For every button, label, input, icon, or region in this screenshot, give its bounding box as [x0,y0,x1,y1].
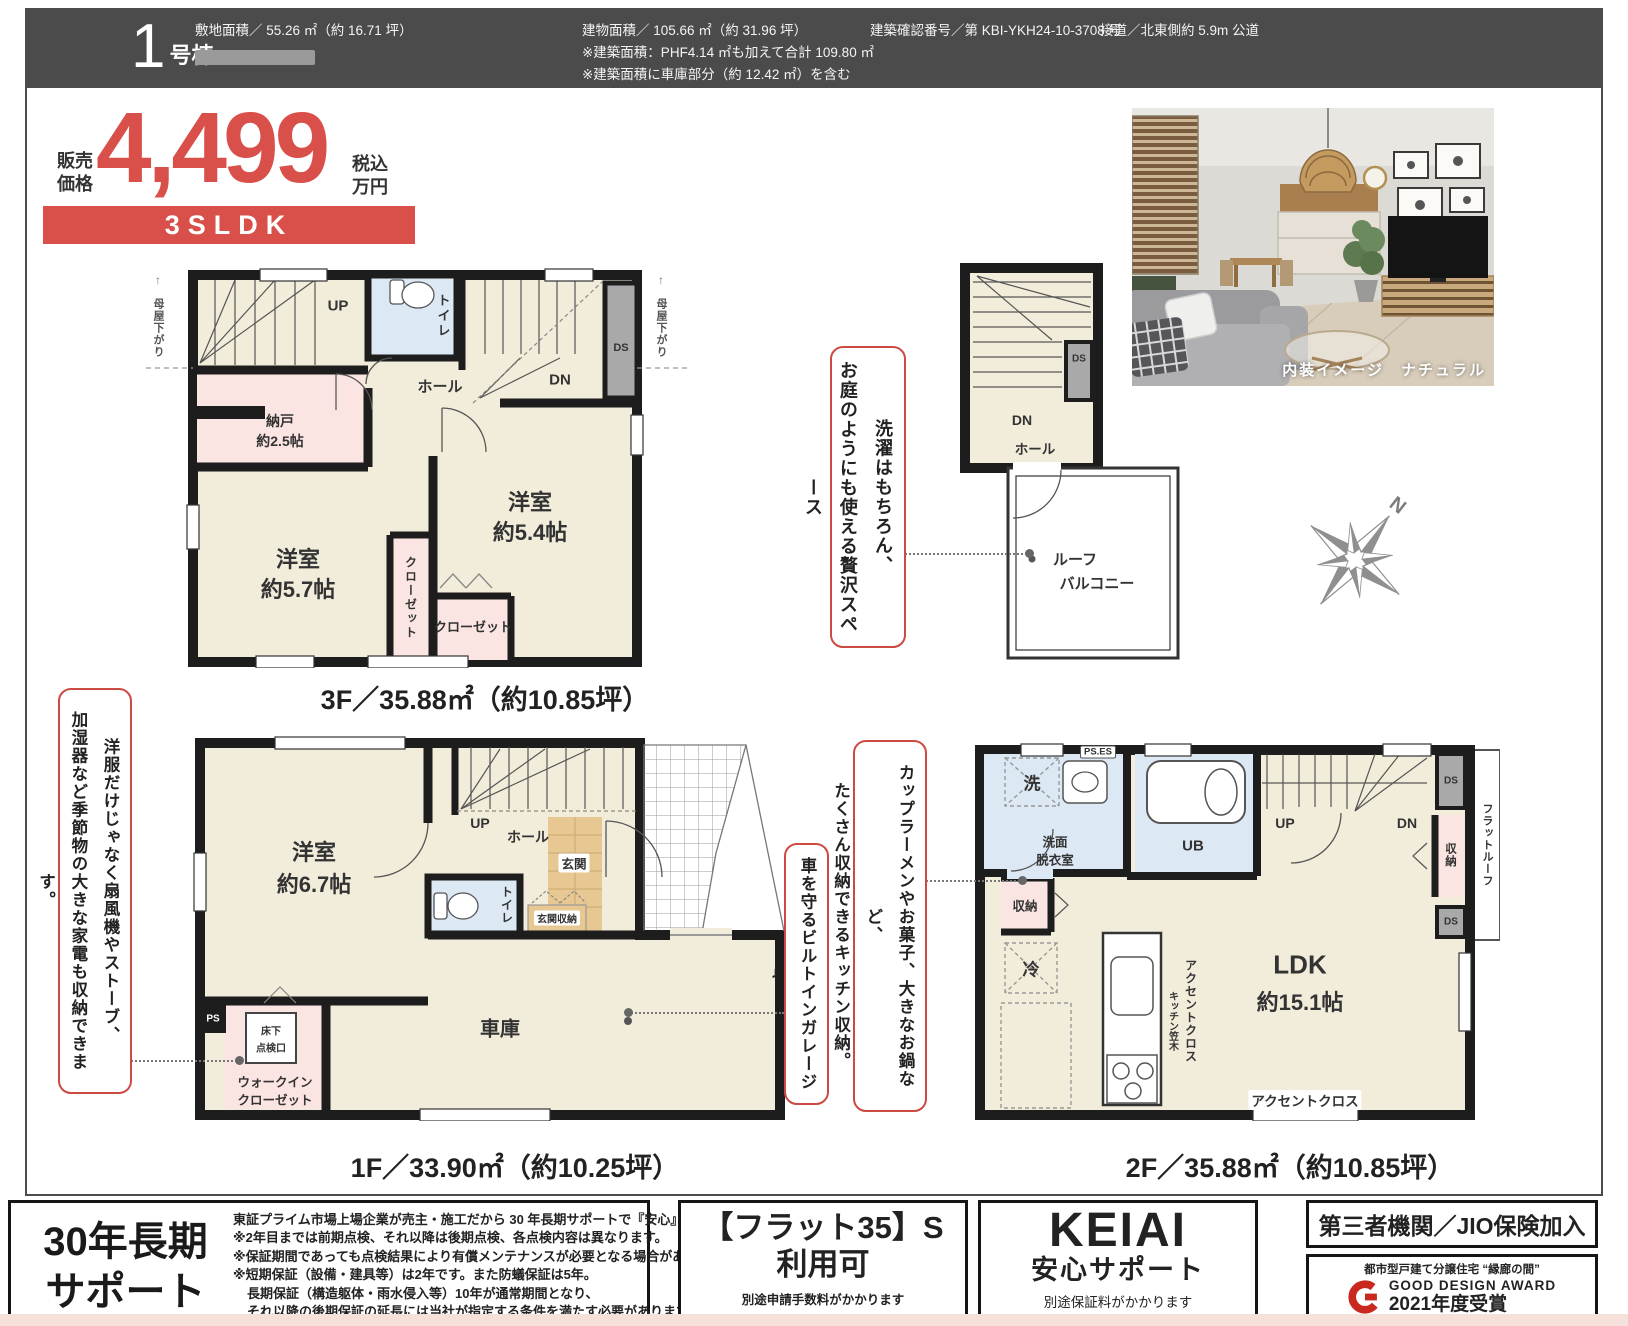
keiai-sub: 安心サポート [1031,1255,1205,1286]
roof-hall-label: ホール [1015,438,1056,458]
jio-box: 第三者機関／JIO保険加入 [1306,1200,1598,1248]
keiai-note: 別途保証料がかかります [1044,1291,1193,1311]
f1-ps-label: PS [206,1014,219,1025]
f3-room1-label: 洋室 [276,542,320,574]
caption-2f: 2F／35.88㎡（約10.85坪） [1090,1146,1490,1185]
good-design-box: 都市型戸建て分譲住宅 “縁廊の間” GOOD DESIGN AWARD 2021… [1306,1254,1598,1318]
f3-room2-label: 洋室 [508,485,552,517]
f3-eaves-left-arrow: ↑ [155,273,161,287]
f3-up-label: UP [328,298,349,315]
f3-toilet-label: トイレ [434,294,453,339]
f1-toilet-label: トイレ [499,886,516,925]
f2-sanitary-label-2: 脱衣室 [1036,850,1074,869]
f1-wic-label-1: ウォークイン [237,1072,312,1091]
f2-accent-cloth-vertical-label: アクセントクロス [1183,959,1200,1063]
roof-dn-label: DN [1012,412,1032,428]
caption-1f: 1F／33.90㎡（約10.25坪） [320,1146,710,1185]
note-kitchen-storage: カップラーメンやお菓子、大きなお鍋など、 たくさん収納できるキッチン収納。 [853,740,927,1112]
f2-accent-cloth-bottom-label: アクセントクロス [1248,1090,1361,1110]
good-design-gmark-icon [1348,1280,1382,1314]
f3-closet1-label: クローゼット [403,556,420,640]
f1-hatch-label-2: 点検口 [256,1040,286,1055]
f1-entry-storage-label: 玄関収納 [534,911,580,926]
f2-flat-roof-label: フラットルーフ [1479,803,1495,887]
leader-storage [128,1060,240,1062]
f2-washer-label: 洗 [1024,770,1041,795]
floor-plan-1f: 洋室 約6.7帖 UP ホール 玄関 玄関収納 トイレ PS 床下 点検口 ウォ… [180,703,792,1121]
f2-ldk-label: LDK [1273,950,1326,981]
f2-up-label: UP [1275,815,1294,831]
f1-room-size: 約6.7帖 [277,867,352,899]
roof-ds-label: DS [1072,354,1086,365]
f2-storage-right-label: 収納 [1442,843,1458,868]
price-label: 販売 価格 [57,150,93,195]
leader-roof [902,553,1030,555]
f1-room-label: 洋室 [292,835,336,867]
f2-sanitary-label-1: 洗面 [1042,832,1067,851]
gd-series: 都市型戸建て分譲住宅 “縁廊の間” [1309,1261,1595,1277]
f2-ps-es-label: PS.ES [1080,746,1116,759]
f2-ub-label: UB [1182,838,1204,855]
keiai-logo: KEIAI [1049,1207,1187,1255]
roof-balcony-label-2: バルコニー [1060,573,1135,594]
floor-plan-3f: UP トイレ DN DS ホール 納戸 約2.5帖 洋室 約5.7帖 洋室 約5… [140,258,720,668]
f2-ldk-size: 約15.1帖 [1257,985,1344,1017]
f3-room2-size: 約5.4帖 [493,515,568,547]
gd-award: GOOD DESIGN AWARD [1389,1279,1556,1294]
bottom-accent-strip [0,1314,1628,1326]
f1-garage-label: 車庫 [480,1013,520,1042]
layout-type-badge: 3SLDK [43,206,415,244]
gd-year: 2021年度受賞 [1389,1294,1556,1316]
f3-room1-size: 約5.7帖 [261,572,336,604]
compass-icon: N [1277,478,1427,628]
f2-fridge-label: 冷 [1023,956,1040,981]
f1-hall-label: ホール [507,827,549,847]
price-tax-label: 税込 万円 [352,153,388,198]
f2-kitchen-kasagi-label: キッチン笠木 [1165,991,1180,1051]
flyer-page: 1 号棟 敷地面積／ 55.26 ㎡（約 16.71 坪） 建物面積／ 105.… [0,0,1628,1326]
f1-up-label: UP [470,815,489,831]
f2-ds1-label: DS [1444,776,1458,787]
photo-caption: 内装イメージ ナチュラル [1282,359,1486,380]
f3-dn-label: DN [549,372,571,389]
f1-entry-label: 玄関 [558,854,589,873]
note-seasonal-storage: 洋服だけじゃなく扇風機やストーブ、 加湿器など季節物の大きな家電も収納できます。 [58,688,132,1094]
flat35-title-2: 利用可 [777,1246,870,1283]
compass-north-label: N [1385,493,1410,519]
f1-wic-label-2: クローゼット [237,1090,312,1109]
f2-ds2-label: DS [1444,917,1458,928]
f2-dn-label: DN [1397,815,1417,831]
f3-hall-label: ホール [417,376,462,397]
price-amount: 4,499 [96,96,326,201]
support-title: 30年長期 サポート [23,1217,228,1317]
f3-ds-label: DS [613,342,628,354]
floor-plan-2f: 洗 PS.ES 洗面 脱衣室 UB UP DN DS DS フラットルーフ 収納… [955,703,1500,1121]
f3-eaves-right-arrow: ↑ [658,273,664,287]
floor-plan-roof: DN DS ホール ルーフ バルコニー [940,262,1190,667]
f2-storage-left-label: 収納 [1012,896,1037,915]
tv-screen [1388,216,1488,278]
flat35-title-1: 【フラット35】S [702,1210,943,1246]
flat35-box: 【フラット35】S 利用可 別途申請手数料がかかります [678,1200,968,1318]
leader-kitchen [923,880,1023,882]
f3-storage-size: 約2.5帖 [256,431,303,451]
flat35-note: 別途申請手数料がかかります [742,1289,905,1308]
f3-eaves-right-label: 母屋下がり [653,298,669,358]
f1-hatch-label-1: 床下 [261,1023,281,1038]
note-roof-balcony: 洗濯はもちろん、 お庭のようにも使える贅沢スペース [830,346,906,648]
f3-storage-label: 納戸 [266,411,294,431]
roof-balcony-label-1: ルーフ [1053,549,1097,570]
f3-eaves-left-label: 母屋下がり [150,298,166,358]
note-garage: 車を守るビルトインガレージ♪ [784,843,829,1105]
jio-label: 第三者機関／JIO保険加入 [1318,1207,1585,1241]
f3-closet2-label: クローゼット [434,617,512,636]
support-box: 30年長期 サポート 東証プライム市場上場企業が売主・施工だから 30 年長期サ… [8,1200,650,1318]
support-notes: 東証プライム市場上場企業が売主・施工だから 30 年長期サポートで『安心』 ※2… [233,1211,736,1322]
keiai-box: KEIAI 安心サポート 別途保証料がかかります [978,1200,1258,1318]
